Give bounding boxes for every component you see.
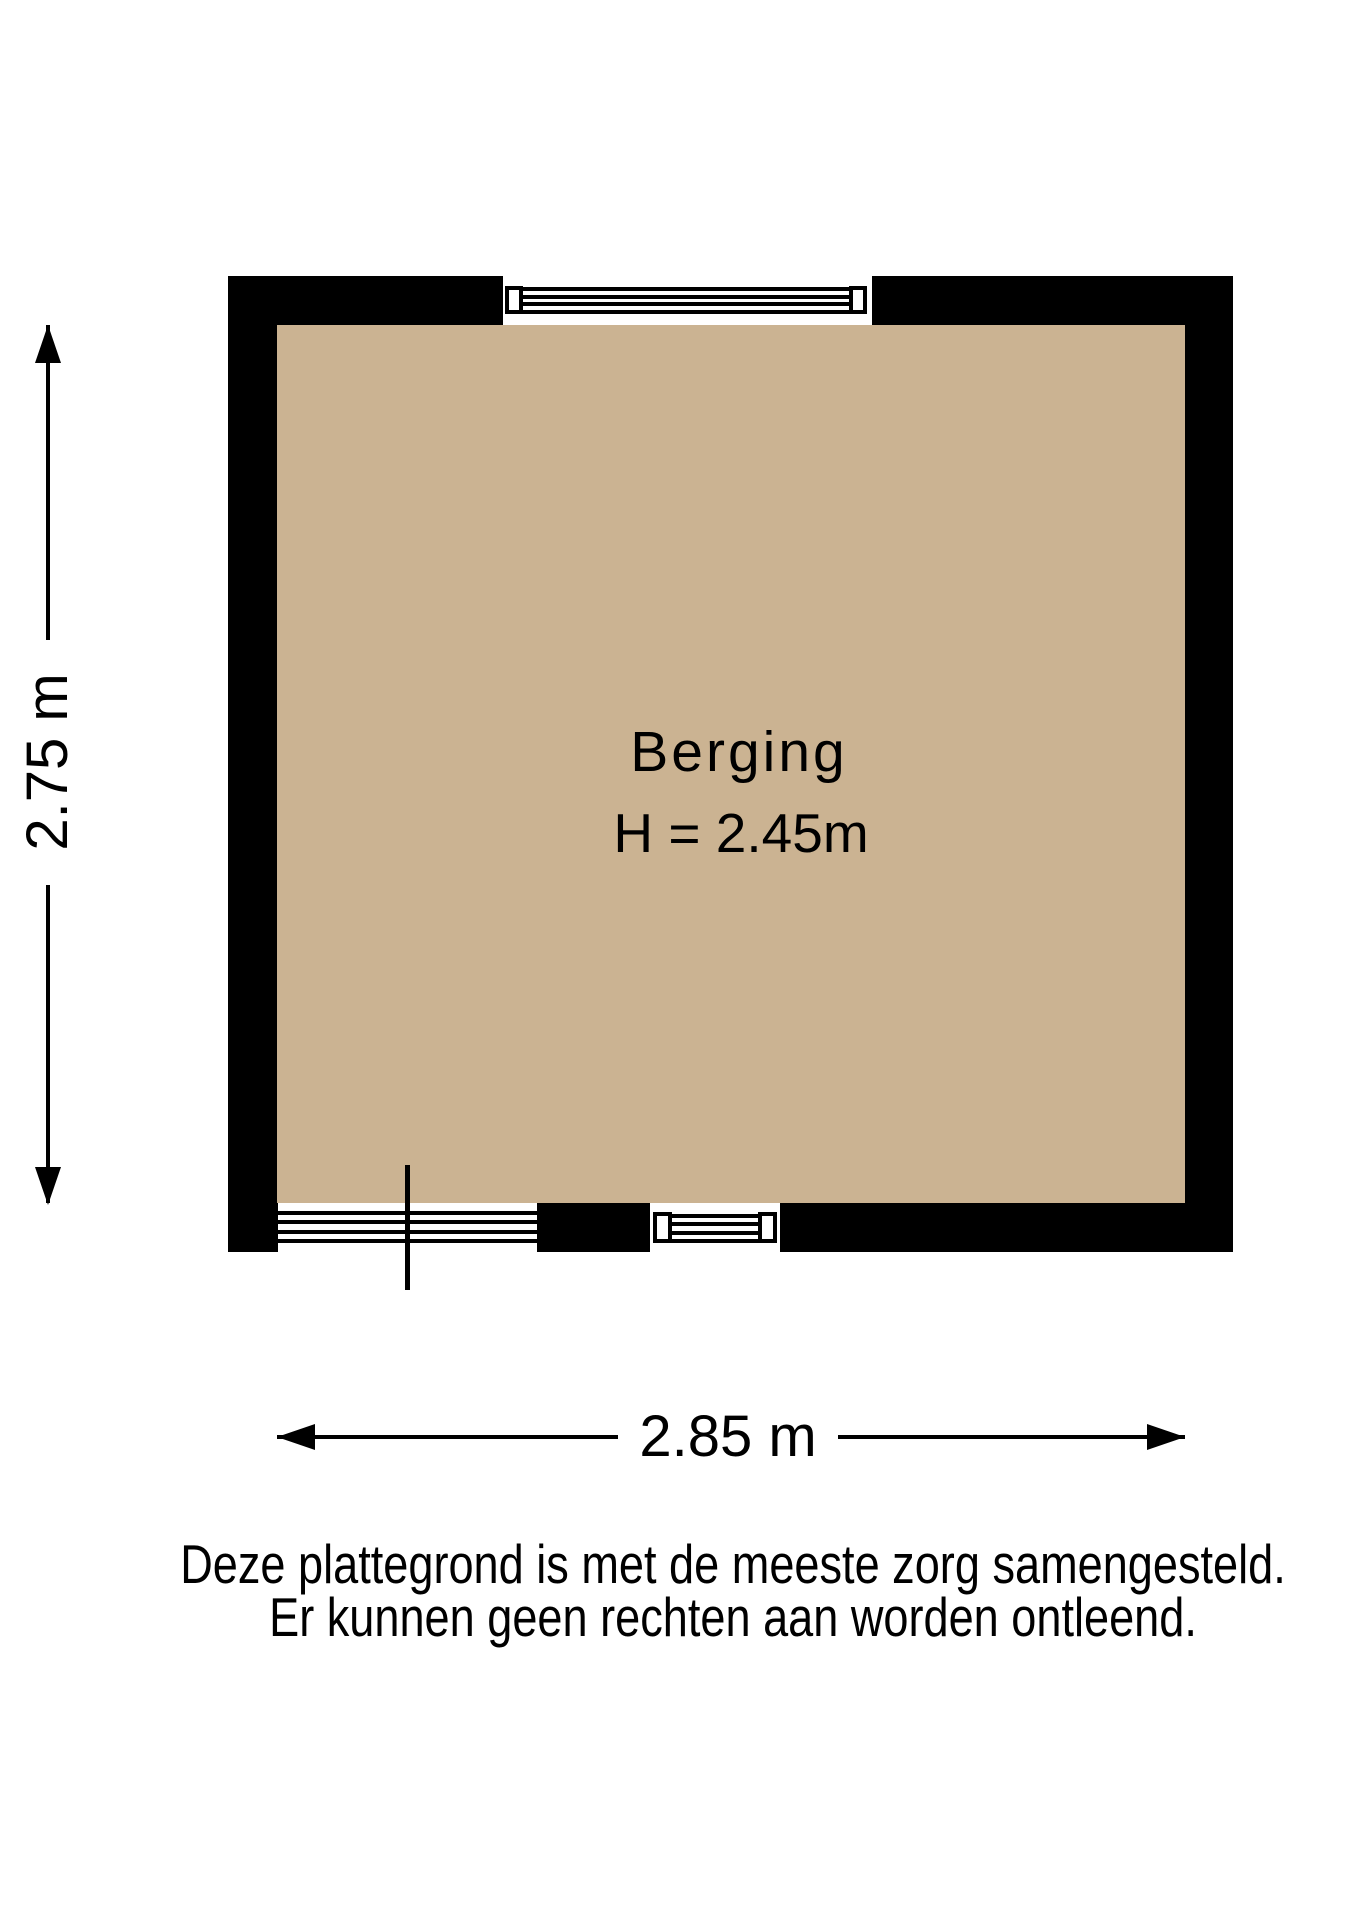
glazing-line (672, 1231, 758, 1235)
arrowhead-left-icon (277, 1424, 315, 1450)
window-end-cap (849, 286, 867, 314)
top-window-glazing (521, 287, 851, 314)
bottom-small-window-glazing (672, 1214, 758, 1243)
disclaimer-line-1: Deze plattegrond is met de meeste zorg s… (180, 1537, 1286, 1592)
window-end-cap (758, 1212, 777, 1243)
window-end-cap (505, 286, 523, 314)
ceiling-height-label: H = 2.45m (613, 801, 868, 865)
horizontal-dimension-line (838, 1435, 1185, 1439)
arrowhead-down-icon (35, 1167, 61, 1205)
glazing-line (521, 310, 851, 314)
vertical-dimension-line (46, 325, 50, 640)
vertical-dimension-label: 2.75 m (19, 673, 77, 850)
horizontal-dimension-line (277, 1435, 618, 1439)
glazing-line (672, 1214, 758, 1218)
glazing-line (672, 1239, 758, 1243)
arrowhead-up-icon (35, 325, 61, 363)
arrowhead-right-icon (1147, 1424, 1185, 1450)
vertical-dimension-line (46, 885, 50, 1203)
floorplan-page: Berging H = 2.45m 2.75 m 2.85 m Deze pla… (0, 0, 1358, 1920)
disclaimer-line-2: Er kunnen geen rechten aan worden ontlee… (269, 1590, 1197, 1645)
horizontal-dimension-label: 2.85 m (639, 1408, 816, 1466)
window-end-cap (653, 1212, 672, 1243)
room-name-label: Berging (630, 719, 847, 785)
glazing-line (521, 287, 851, 291)
glazing-line (521, 295, 851, 299)
window-center-post-line (405, 1165, 410, 1290)
glazing-line (672, 1222, 758, 1226)
glazing-line (521, 302, 851, 306)
